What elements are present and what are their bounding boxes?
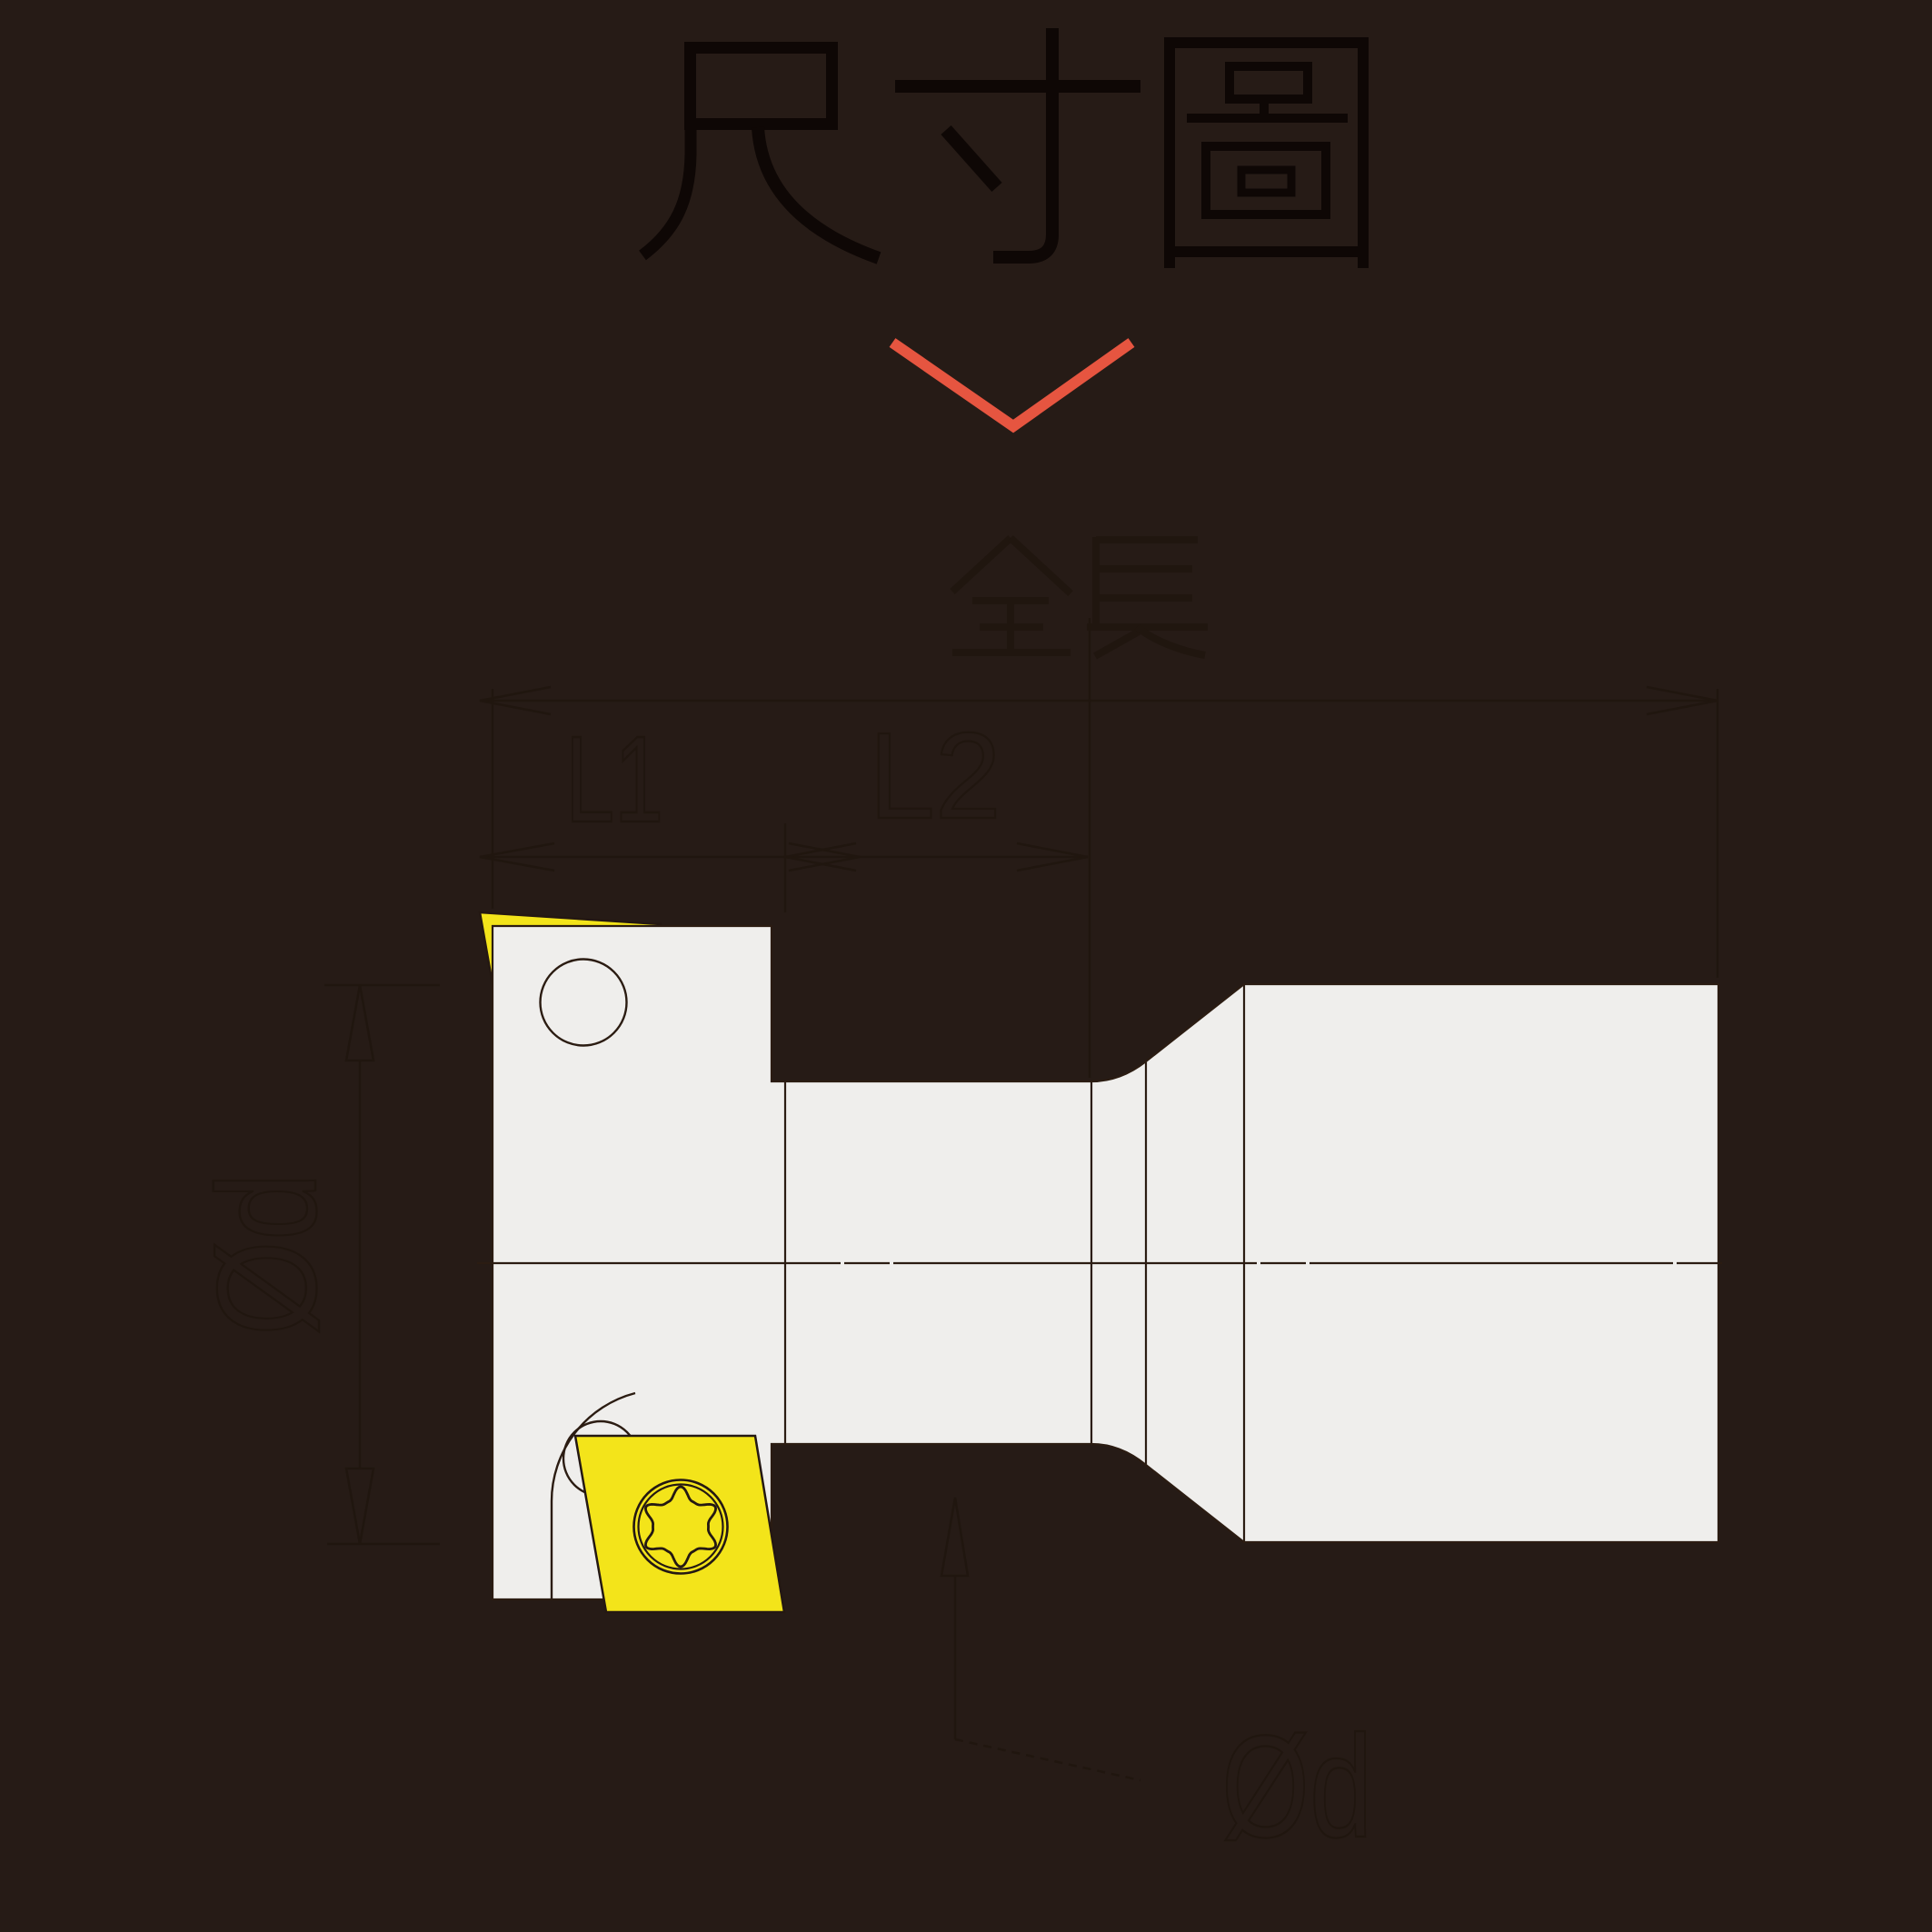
svg-text:Ød: Ød [1221,1706,1372,1867]
svg-text:L1: L1 [565,711,663,847]
svg-text:L2: L2 [869,708,1001,844]
svg-text:Ød: Ød [187,1172,345,1336]
